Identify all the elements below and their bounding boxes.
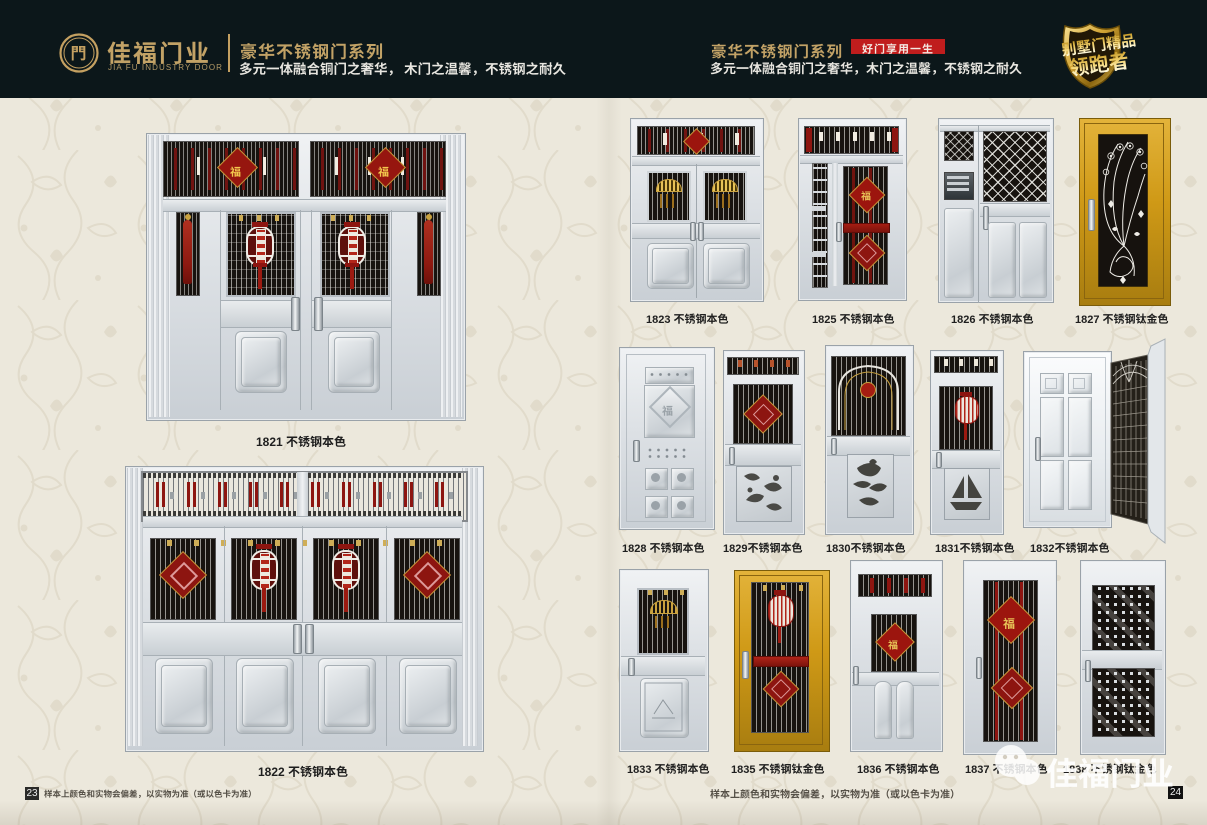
svg-text:1823: 1823 (646, 314, 670, 326)
svg-text:1836: 1836 (857, 764, 881, 776)
svg-text:1827: 1827 (1075, 314, 1099, 326)
svg-text:1830: 1830 (826, 543, 850, 555)
svg-text:1826: 1826 (951, 314, 975, 326)
svg-text:1831: 1831 (935, 543, 959, 555)
svg-text:1833: 1833 (627, 764, 651, 776)
svg-text:1828: 1828 (622, 543, 646, 555)
svg-text:1832: 1832 (1030, 543, 1054, 555)
svg-text:1835: 1835 (731, 764, 755, 776)
svg-text:1821: 1821 (256, 435, 283, 449)
svg-text:1825: 1825 (812, 314, 836, 326)
svg-text:1822: 1822 (258, 765, 285, 779)
svg-text:1837: 1837 (965, 764, 989, 776)
svg-text:1829: 1829 (723, 543, 747, 555)
